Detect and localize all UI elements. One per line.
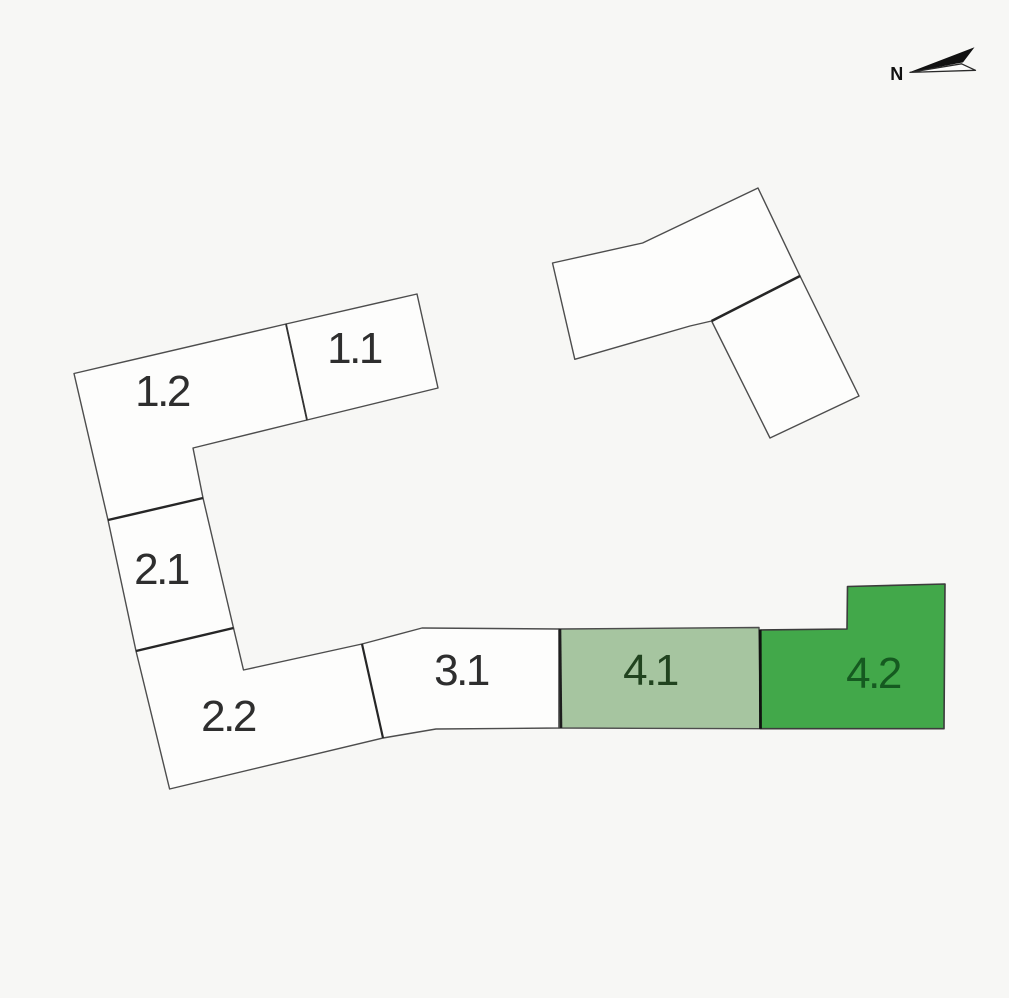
svg-text:4.1: 4.1	[623, 646, 678, 695]
svg-text:1.1: 1.1	[327, 324, 382, 373]
svg-text:N: N	[890, 64, 903, 84]
svg-text:2.2: 2.2	[201, 692, 256, 741]
svg-text:2.1: 2.1	[134, 545, 189, 594]
svg-text:3.1: 3.1	[434, 646, 489, 695]
svg-text:1.2: 1.2	[135, 367, 190, 416]
svg-text:4.2: 4.2	[846, 649, 901, 698]
